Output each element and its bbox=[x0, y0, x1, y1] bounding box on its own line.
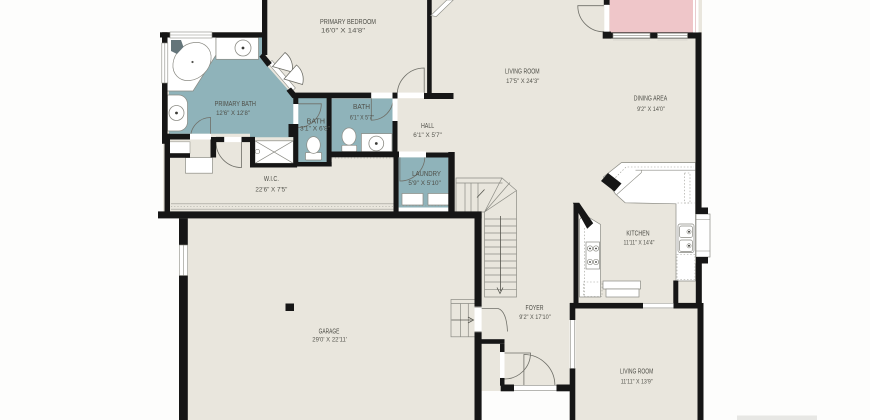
svg-text:DINING AREA: DINING AREA bbox=[634, 96, 668, 103]
svg-text:17'5" X 24'3": 17'5" X 24'3" bbox=[506, 78, 540, 85]
svg-text:FOYER: FOYER bbox=[526, 305, 544, 312]
svg-text:6'1" X 5'7": 6'1" X 5'7" bbox=[350, 114, 375, 121]
svg-text:BATH: BATH bbox=[353, 104, 370, 111]
svg-text:6'1" X 5'7": 6'1" X 5'7" bbox=[413, 132, 442, 139]
svg-text:16'0" X 14'8": 16'0" X 14'8" bbox=[321, 27, 366, 34]
svg-text:LIVING ROOM: LIVING ROOM bbox=[620, 368, 653, 375]
svg-text:12'6" X 12'8": 12'6" X 12'8" bbox=[216, 110, 250, 117]
svg-text:LIVING ROOM: LIVING ROOM bbox=[505, 69, 540, 76]
svg-text:9'2" X 17'10": 9'2" X 17'10" bbox=[519, 314, 551, 321]
svg-text:PRIMARY BEDROOM: PRIMARY BEDROOM bbox=[320, 17, 376, 26]
svg-text:W.I.C.: W.I.C. bbox=[264, 176, 279, 183]
svg-text:3'1" X 6'8": 3'1" X 6'8" bbox=[300, 126, 331, 133]
svg-text:HALL: HALL bbox=[421, 123, 434, 130]
svg-text:BATH: BATH bbox=[307, 118, 325, 125]
svg-text:GARAGE: GARAGE bbox=[319, 328, 340, 335]
svg-text:PRIMARY BATH: PRIMARY BATH bbox=[215, 101, 256, 108]
svg-text:11'11" X 14'4": 11'11" X 14'4" bbox=[624, 240, 656, 247]
svg-text:LAUNDRY: LAUNDRY bbox=[412, 171, 441, 178]
svg-text:11'11" X 13'9": 11'11" X 13'9" bbox=[621, 378, 654, 385]
svg-text:KITCHEN: KITCHEN bbox=[626, 231, 649, 238]
svg-text:9'2" X 14'0": 9'2" X 14'0" bbox=[637, 106, 665, 113]
svg-text:29'0' X 22'11': 29'0' X 22'11' bbox=[312, 337, 347, 344]
svg-text:5'9" X 5'10": 5'9" X 5'10" bbox=[408, 180, 441, 187]
svg-text:22'6" X 7'5": 22'6" X 7'5" bbox=[255, 186, 288, 193]
